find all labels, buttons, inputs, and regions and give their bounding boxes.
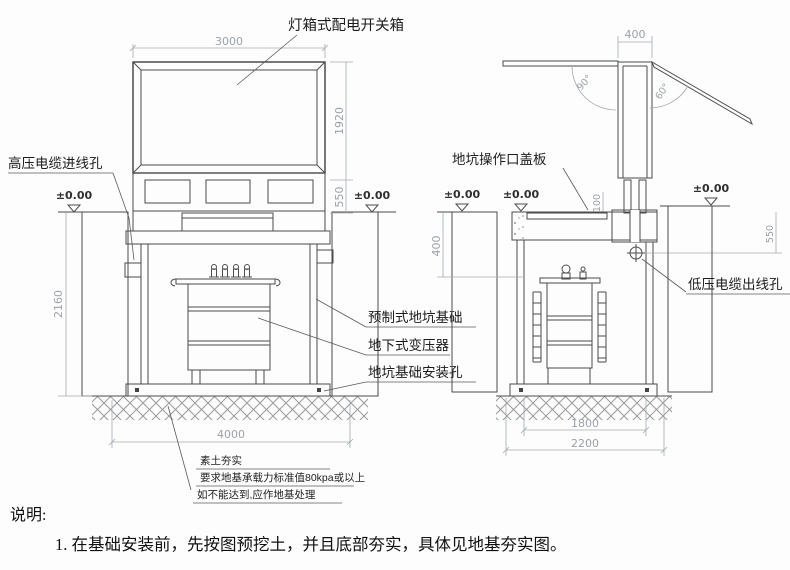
level-mark-5: ±0.00 bbox=[693, 182, 730, 195]
radiator-fins bbox=[533, 292, 606, 362]
level-mark-2: ±0.00 bbox=[354, 189, 391, 202]
level-mark-1: ±0.00 bbox=[56, 189, 93, 202]
description-block: 说明: 1. 在基础安装前，先按图预挖土，并且底部夯实，具体见地基夯实图。 bbox=[10, 506, 567, 554]
side-elevation: 90° 60° 400 100 bbox=[430, 28, 790, 456]
bushings bbox=[209, 265, 252, 278]
dim-cabinet-width: 3000 bbox=[215, 35, 243, 48]
note-soil-compaction: 素土夯实 bbox=[200, 454, 242, 467]
dim-angle-90: 90° bbox=[575, 73, 594, 93]
lightbox-cabinet bbox=[133, 62, 325, 173]
dim-pit-depth: 2160 bbox=[52, 290, 65, 318]
dim-pit-inner-width: 1800 bbox=[571, 417, 599, 430]
access-neck: 100 bbox=[592, 180, 646, 213]
dim-buried-depth: 400 bbox=[430, 236, 443, 257]
label-hv-cable-inlet: 高压电缆进线孔 bbox=[8, 155, 103, 171]
dim-cabinet-base-height: 550 bbox=[333, 187, 346, 208]
dim-excavation-width: 4000 bbox=[217, 428, 245, 441]
label-underground-transformer: 地下式变压器 bbox=[368, 338, 449, 353]
description-item-1: 1. 在基础安装前，先按图预挖土，并且底部夯实，具体见地基夯实图。 bbox=[55, 535, 567, 554]
dim-chimney-width: 400 bbox=[625, 28, 646, 41]
earth-hatching-side bbox=[437, 206, 730, 420]
engineering-drawing-canvas: 3000 1920 550 2160 4000 ±0.00 ±0.00 灯箱式 bbox=[0, 0, 790, 570]
dim-opening-offset: 100 bbox=[592, 194, 603, 212]
label-pit-access-cover: 地坑操作口盖板 bbox=[452, 152, 547, 167]
note-bearing-capacity: 要求地基承载力标准值80kpa或以上 bbox=[200, 471, 365, 484]
underground-transformer-drawing: 3000 1920 550 2160 4000 ±0.00 ±0.00 灯箱式 bbox=[0, 0, 790, 570]
mounting-hole-right bbox=[317, 388, 321, 392]
pit-slab bbox=[512, 210, 657, 242]
dim-angle-60: 60° bbox=[653, 82, 672, 102]
label-lightbox-switchbox: 灯箱式配电开关箱 bbox=[288, 17, 404, 34]
dimensions-front: 3000 1920 550 2160 4000 bbox=[52, 35, 353, 448]
dim-cabinet-height: 1920 bbox=[333, 107, 346, 135]
label-lv-cable-outlet: 低压电缆出线孔 bbox=[688, 277, 783, 292]
transformer-side bbox=[533, 265, 606, 384]
cabinet-base-step bbox=[133, 211, 325, 231]
side-cable-hole bbox=[317, 250, 333, 263]
label-pit-mounting-hole: 地坑基础安装孔 bbox=[368, 364, 463, 380]
ground-notes: 素土夯实 要求地基承载力标准值80kpa或以上 如不能达到,应作地基处理 bbox=[168, 406, 365, 503]
labels-side: 地坑操作口盖板 低压电缆出线孔 bbox=[452, 152, 790, 294]
note-ground-treatment: 如不能达到,应作地基处理 bbox=[197, 488, 316, 501]
pit-structure bbox=[125, 244, 333, 396]
level-mark-3: ±0.00 bbox=[444, 188, 481, 201]
front-elevation: 3000 1920 550 2160 4000 ±0.00 ±0.00 灯箱式 bbox=[8, 17, 476, 503]
mounting-hole-left bbox=[135, 388, 139, 392]
pit-structure-side bbox=[510, 240, 657, 396]
transformer-front bbox=[171, 265, 280, 385]
ring-beam bbox=[126, 231, 330, 244]
hv-cable-hole bbox=[125, 263, 141, 277]
dim-chimney-width-group: 400 bbox=[618, 28, 652, 58]
description-heading: 说明: bbox=[10, 506, 46, 524]
label-precast-pit-foundation: 预制式地坑基础 bbox=[368, 309, 463, 325]
louver-band bbox=[133, 173, 325, 211]
lv-cable-hole-symbol bbox=[627, 244, 782, 262]
access-cover-plate bbox=[527, 213, 607, 219]
dim-pit-outer-width: 2200 bbox=[571, 437, 599, 450]
level-mark-4: ±0.00 bbox=[503, 188, 540, 201]
earth-hatching-front bbox=[58, 212, 396, 420]
cover-open-flat bbox=[503, 61, 618, 66]
dim-slab-edge-depth: 550 bbox=[765, 225, 776, 243]
level-marks-side: ±0.00 ±0.00 ±0.00 bbox=[444, 182, 730, 211]
labels-front: 灯箱式配电开关箱 高压电缆进线孔 预制式地坑基础 地下式变压器 地坑基础安装孔 bbox=[8, 17, 476, 391]
